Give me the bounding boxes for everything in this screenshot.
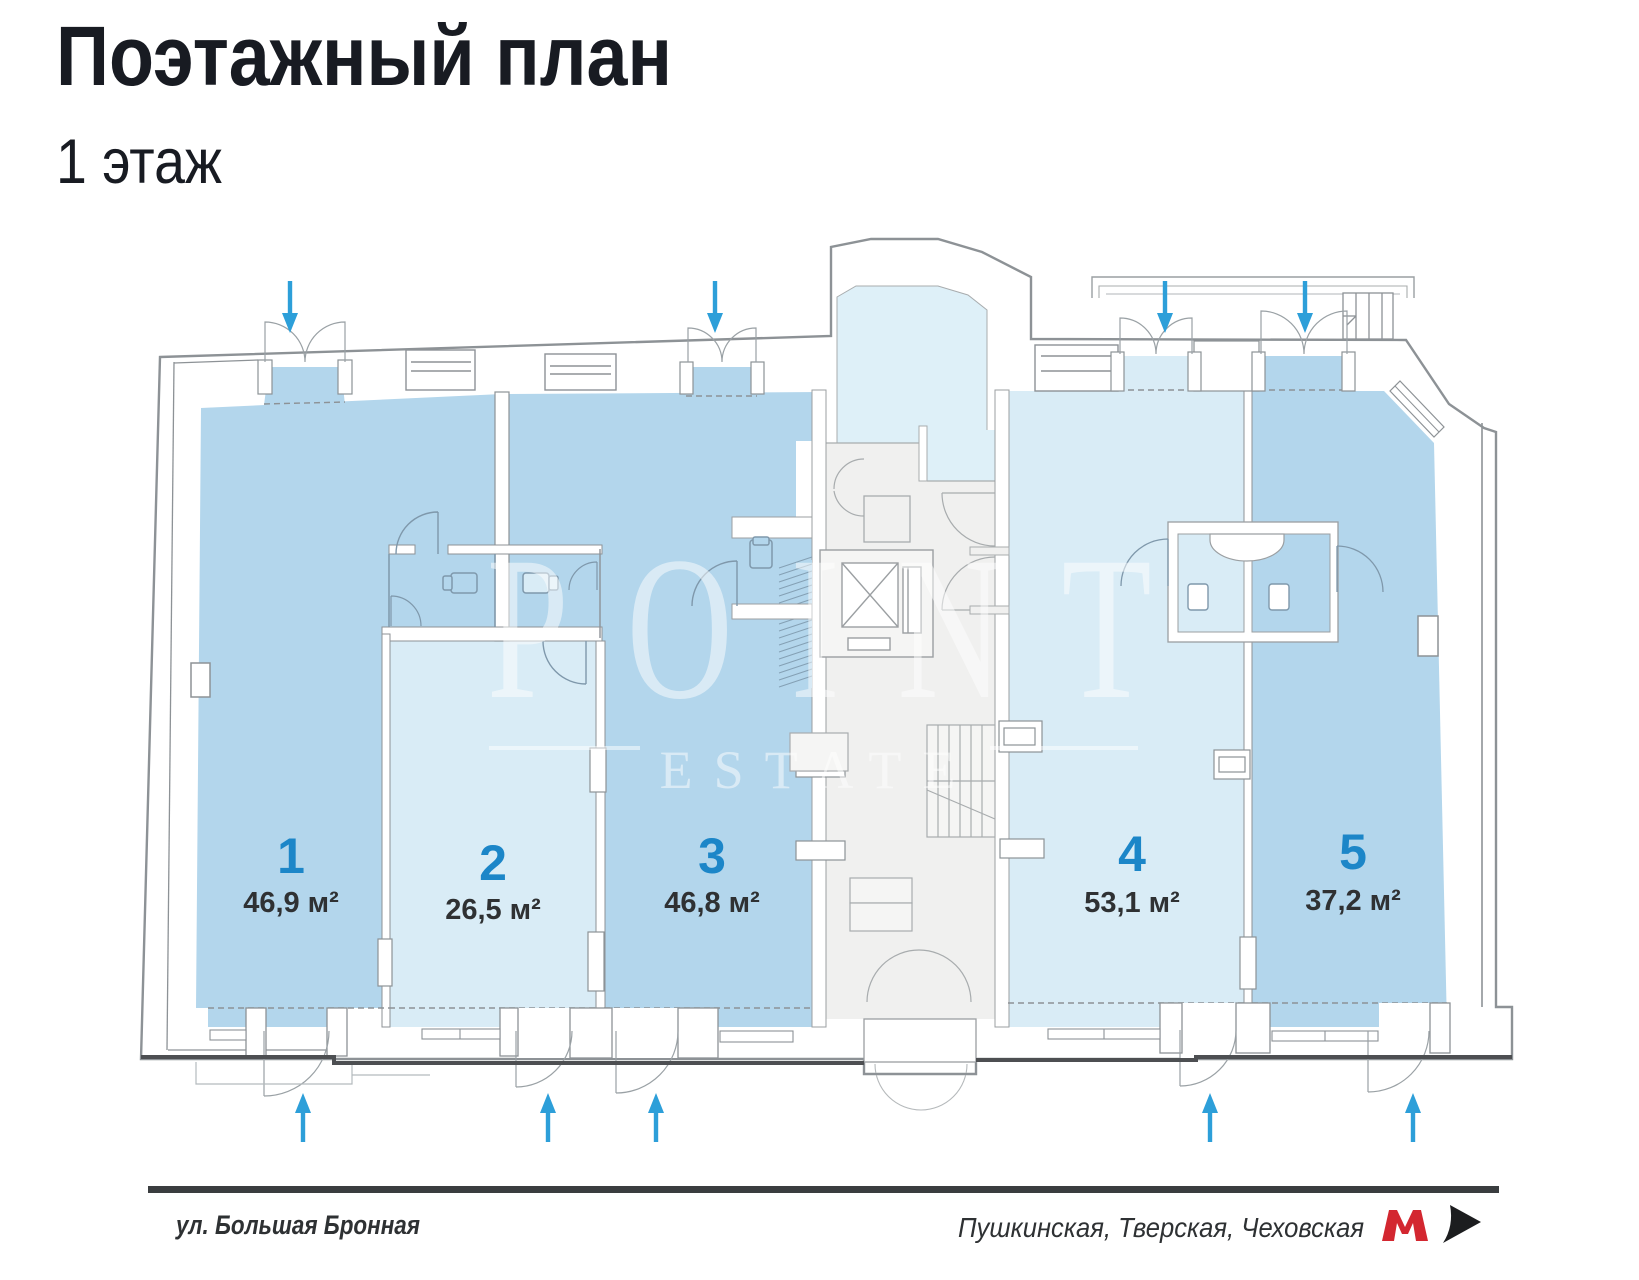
svg-text:53,1 м²: 53,1 м²: [1084, 887, 1180, 919]
svg-text:5: 5: [1339, 824, 1367, 880]
svg-text:4: 4: [1118, 826, 1146, 882]
svg-text:1: 1: [277, 828, 305, 884]
svg-text:ул. Большая Бронная: ул. Большая Бронная: [174, 1210, 420, 1240]
svg-text:POINT: POINT: [487, 515, 1210, 742]
svg-text:2: 2: [479, 835, 507, 891]
svg-text:3: 3: [698, 828, 726, 884]
svg-text:Поэтажный план: Поэтажный план: [56, 9, 672, 103]
svg-text:1 этаж: 1 этаж: [56, 127, 222, 197]
svg-text:Пушкинская, Тверская, Чеховска: Пушкинская, Тверская, Чеховская: [958, 1212, 1364, 1243]
svg-text:ESTATE: ESTATE: [660, 740, 977, 800]
svg-text:46,8 м²: 46,8 м²: [664, 887, 760, 919]
svg-text:46,9 м²: 46,9 м²: [243, 887, 339, 919]
svg-text:26,5 м²: 26,5 м²: [445, 894, 541, 926]
svg-text:37,2 м²: 37,2 м²: [1305, 885, 1401, 917]
